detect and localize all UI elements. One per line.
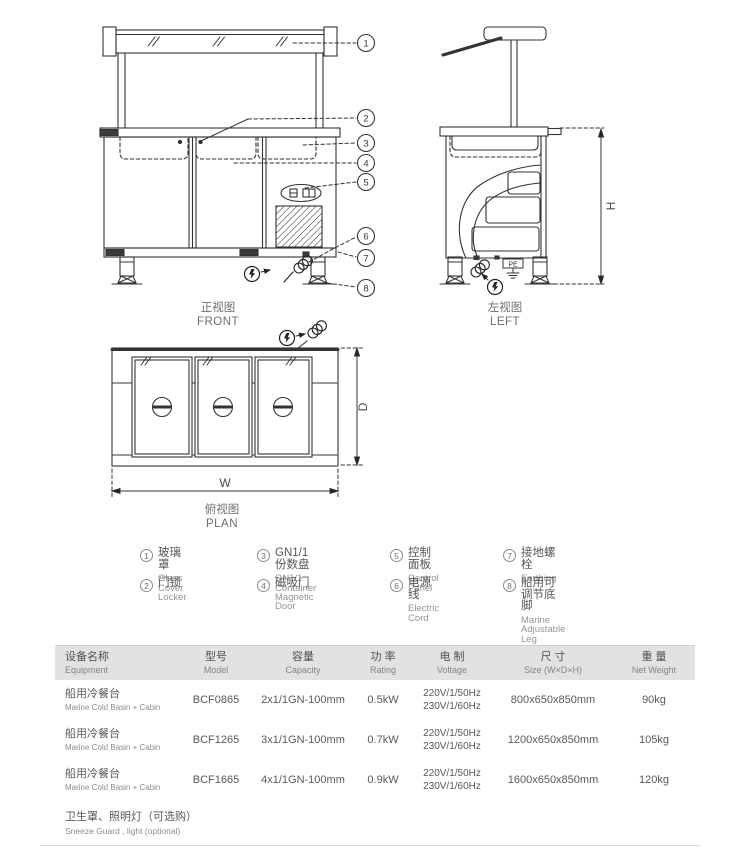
svg-text:5: 5 [363, 178, 368, 189]
legend-label-en: Locker [158, 593, 187, 603]
dim-label-d: D [356, 402, 370, 411]
header-voltage: 电 制Voltage [411, 651, 493, 676]
legend-label-zh: 控制面板 [408, 548, 439, 571]
callout-6: 6 [358, 228, 375, 245]
table-row: 船用冷餐台Marine Cold Basin + Cabin BCF1265 3… [55, 720, 695, 760]
header-equipment: 设备名称Equipment [55, 651, 181, 676]
cord-coil-icon [471, 260, 489, 277]
callout-5: 5 [358, 174, 375, 191]
svg-text:8: 8 [363, 284, 368, 295]
spec-table-header: 设备名称Equipment 型号Model 容量Capacity 功 率Rati… [55, 645, 695, 680]
legend-num: 7 [503, 549, 516, 562]
legend-num: 4 [257, 579, 270, 592]
dim-label-w: W [219, 476, 231, 490]
legend-item-magnetic-door: 4 磁吸门Magnetic Door [257, 578, 314, 612]
legend-num: 1 [140, 549, 153, 562]
legend-num: 8 [503, 579, 516, 592]
svg-text:7: 7 [363, 254, 368, 265]
callout-8: 8 [358, 280, 375, 297]
legend-label-zh: 门锁 [158, 578, 187, 590]
cell-rating: 0.9kW [355, 774, 411, 787]
cell-model: BCF0865 [181, 694, 251, 707]
electric-cord-icon [471, 260, 503, 295]
cell-weight: 105kg [613, 734, 695, 747]
cell-size: 1200x650x850mm [493, 734, 613, 747]
spec-table: 设备名称Equipment 型号Model 容量Capacity 功 率Rati… [55, 645, 695, 836]
left-view-drawing [440, 27, 604, 295]
adjustable-leg [440, 257, 470, 284]
callout-4: 4 [358, 155, 375, 172]
cell-rating: 0.7kW [355, 734, 411, 747]
magnetic-doors [178, 137, 266, 248]
gn-containers [120, 137, 316, 159]
legend-item-electric-cord: 6 电源线Electric Cord [390, 578, 439, 623]
table-footnote: 卫生罩、照明灯（可选购） Sneeze Guard , light (optio… [55, 808, 695, 836]
dim-label-h: H [604, 202, 618, 211]
cell-model: BCF1265 [181, 734, 251, 747]
plug-power-icon [280, 331, 295, 346]
adjustable-leg [525, 257, 555, 284]
cell-weight: 120kg [613, 774, 695, 787]
table-row: 船用冷餐台Marine Cold Basin + Cabin BCF0865 2… [55, 680, 695, 720]
bottom-divider [40, 845, 700, 846]
cell-size: 1600x650x850mm [493, 774, 613, 787]
left-view-title-zh: 左视图 [488, 300, 523, 314]
legend-label-zh: 接地螺栓 [521, 548, 556, 571]
callout-bubbles: 1 2 3 4 5 6 7 8 [358, 35, 375, 297]
cell-equipment: 船用冷餐台Marine Cold Basin + Cabin [55, 768, 181, 792]
plug-power-icon [245, 267, 260, 282]
legend-num: 2 [140, 579, 153, 592]
legend-num: 6 [390, 579, 403, 592]
svg-text:3: 3 [363, 139, 368, 150]
legend-label-en: Marine Adjustable Leg [521, 616, 565, 645]
door-lock-dot [178, 140, 181, 143]
cord-coil-icon [294, 256, 312, 273]
front-view-drawing [100, 27, 340, 284]
glass-cover [103, 27, 337, 128]
vent-grille [276, 206, 322, 247]
plug-power-icon [488, 280, 503, 295]
legend-label-en: Magnetic Door [275, 593, 314, 612]
callout-2: 2 [358, 110, 375, 127]
callout-1: 1 [358, 35, 375, 52]
legend-num: 3 [257, 549, 270, 562]
legend-label-zh: 船用可调节底脚 [521, 578, 565, 613]
cell-capacity: 3x1/1GN-100mm [251, 734, 355, 747]
front-view-title-zh: 正视图 [201, 300, 236, 314]
legend-label-zh: 玻璃罩 [158, 548, 183, 571]
legend-label-zh: 磁吸门 [275, 578, 314, 590]
header-weight: 重 量Net Weight [613, 651, 695, 676]
cell-equipment: 船用冷餐台Marine Cold Basin + Cabin [55, 688, 181, 712]
svg-text:4: 4 [363, 159, 368, 170]
footnote-zh: 卫生罩、照明灯（可选购） [65, 808, 695, 824]
callout-7: 7 [358, 250, 375, 267]
adjustable-leg [112, 257, 142, 284]
cord-coil-icon [308, 321, 326, 338]
front-view-title-en: FRONT [197, 316, 239, 328]
header-rating: 功 率Rating [355, 651, 411, 676]
cell-size: 800x650x850mm [493, 694, 613, 707]
cell-voltage: 220V/1/50Hz230V/1/60Hz [411, 727, 493, 754]
legend-label-zh: GN1/1 份数盘 [275, 548, 316, 571]
header-size: 尺 寸Size (W×D×H) [493, 651, 613, 676]
legend-item-adjustable-leg: 8 船用可调节底脚Marine Adjustable Leg [503, 578, 565, 644]
cell-equipment: 船用冷餐台Marine Cold Basin + Cabin [55, 728, 181, 752]
cell-voltage: 220V/1/50Hz230V/1/60Hz [411, 687, 493, 714]
legend-label-zh: 电源线 [408, 578, 439, 601]
cell-model: BCF1665 [181, 774, 251, 787]
cell-rating: 0.5kW [355, 694, 411, 707]
glass-cover-side [443, 27, 546, 127]
glass-mark-icon [148, 37, 288, 46]
svg-text:2: 2 [363, 114, 368, 125]
callout-leader-lines [201, 43, 356, 287]
legend-num: 5 [390, 549, 403, 562]
header-capacity: 容量Capacity [251, 651, 355, 676]
cutaway-shelves [459, 165, 541, 258]
callout-3: 3 [358, 135, 375, 152]
control-panel [281, 185, 321, 202]
pe-label: PE [508, 262, 518, 269]
plan-view-title-en: PLAN [206, 518, 238, 530]
left-view-title-en: LEFT [490, 316, 520, 328]
dimension-h [548, 128, 604, 284]
cell-voltage: 220V/1/50Hz230V/1/60Hz [411, 767, 493, 794]
legend-label-en: Electric Cord [408, 604, 439, 623]
cell-capacity: 2x1/1GN-100mm [251, 694, 355, 707]
cell-capacity: 4x1/1GN-100mm [251, 774, 355, 787]
footnote-en: Sneeze Guard , light (optional) [65, 826, 695, 836]
cell-weight: 90kg [613, 694, 695, 707]
svg-text:6: 6 [363, 232, 368, 243]
svg-text:1: 1 [363, 39, 368, 50]
plan-view-drawing [112, 321, 363, 497]
plan-view-title-zh: 俯视图 [205, 502, 240, 516]
electric-cord-icon [280, 321, 327, 349]
technical-drawing-canvas: 1 2 3 4 5 6 7 8 正视图 FRONT 左视图 LEFT 俯视图 P… [0, 0, 742, 540]
table-row: 船用冷餐台Marine Cold Basin + Cabin BCF1665 4… [55, 760, 695, 800]
header-model: 型号Model [181, 651, 251, 676]
legend-item-locker: 2 门锁Locker [140, 578, 187, 602]
